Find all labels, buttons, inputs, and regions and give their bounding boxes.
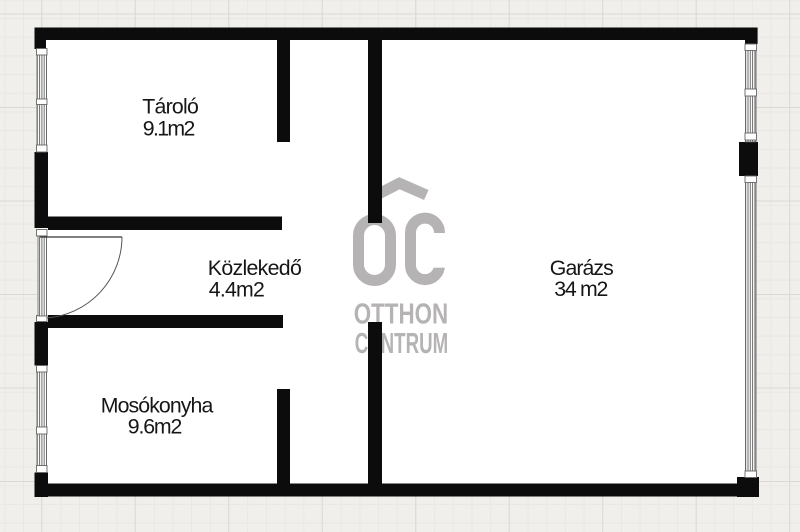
svg-text:34 m2: 34 m2: [554, 277, 608, 301]
svg-text:Tároló: Tároló: [142, 95, 199, 119]
svg-text:4.4m2: 4.4m2: [209, 277, 265, 301]
svg-text:OTTHON: OTTHON: [354, 299, 449, 331]
svg-text:9.6m2: 9.6m2: [128, 414, 183, 438]
svg-text:9.1m2: 9.1m2: [143, 116, 196, 140]
